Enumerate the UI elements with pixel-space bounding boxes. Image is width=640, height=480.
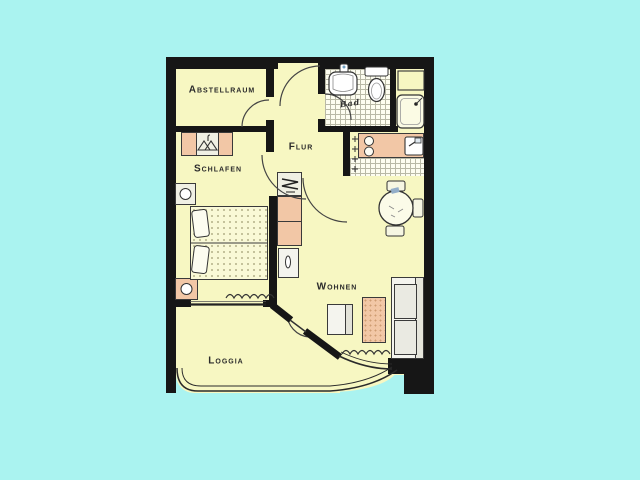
nightstand-top [175, 183, 196, 205]
wohnen-wardrobe-divider [278, 221, 301, 222]
double-bed [190, 206, 268, 280]
room-label-schlafen: Schlafen [194, 164, 242, 175]
loggia-window-post-right [263, 300, 271, 307]
loggia-floor [176, 300, 340, 393]
wall-left [166, 57, 176, 393]
entrance-opening [278, 63, 318, 71]
sofa-cushion-top [394, 284, 417, 319]
wall-bath-shower-divider [390, 69, 396, 126]
wall-bath-bottom [318, 126, 398, 132]
floor-plan-scan: Abstellraum Schlafen Flur Wohnen Loggia … [0, 0, 640, 480]
wall-bottom-right-step [404, 374, 434, 394]
wall-bottom-right [388, 358, 434, 374]
kitchen-tiles [350, 158, 424, 176]
wall-kitchen-left [343, 126, 350, 176]
sofa-cushion-bottom [394, 320, 417, 355]
wohnen-wardrobe [277, 196, 302, 246]
wall-bath-left-upper [318, 63, 325, 94]
room-label-loggia: Loggia [208, 356, 243, 367]
coffee-table [362, 297, 386, 343]
schlafen-wardrobe-middle [196, 133, 219, 155]
dresser [278, 248, 299, 278]
room-label-wohnen: Wohnen [317, 282, 358, 293]
wall-schlafen-right-lower [269, 196, 277, 306]
room-label-abstellraum: Abstellraum [189, 85, 255, 96]
nightstand-bottom [175, 278, 198, 300]
kitchen-counter [358, 133, 424, 158]
armchair [327, 304, 353, 335]
wall-schlafen-right-stub [266, 132, 274, 152]
wall-abstellraum-right-stub [266, 120, 274, 132]
loggia-window-post-left [184, 300, 191, 307]
armchair-backrest [345, 305, 352, 334]
wall-right [424, 57, 434, 374]
wall-abstellraum-right-upper [266, 63, 274, 97]
room-label-flur: Flur [289, 142, 314, 153]
schlafen-wardrobe [181, 132, 233, 156]
tv-cabinet [277, 172, 302, 196]
sofa [391, 277, 424, 359]
